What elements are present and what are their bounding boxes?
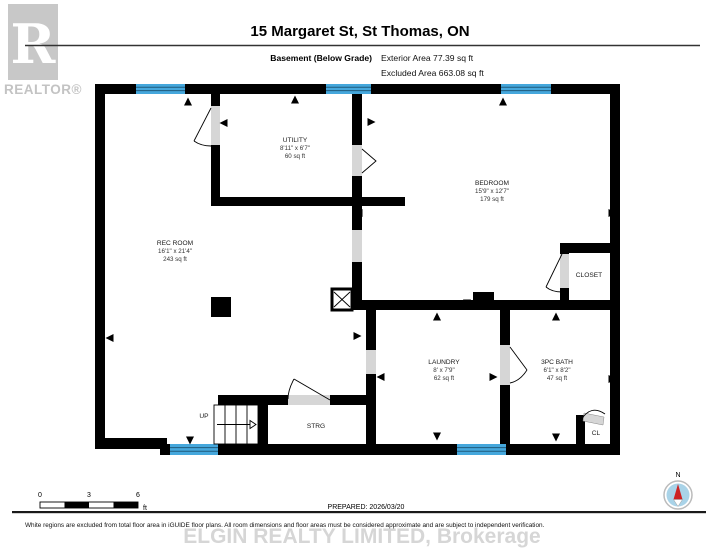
bedroom-dims: 15'9" x 12'7" xyxy=(475,188,509,195)
wall-laundry-left-2 xyxy=(366,374,376,445)
wall-bedroom-bottom xyxy=(352,300,620,310)
direction-arrow xyxy=(552,434,560,442)
chimney-box xyxy=(332,289,352,310)
door-opening-utility xyxy=(211,106,220,145)
compass: N xyxy=(664,472,692,509)
direction-arrow xyxy=(433,313,441,321)
wall-bedroom-bottom-bump xyxy=(473,292,494,300)
rec-room-area: 243 sq ft xyxy=(163,256,187,263)
floor-plan-page: R REALTOR® 15 Margaret St, St Thomas, ON… xyxy=(0,0,720,556)
door-leaf-utility xyxy=(194,108,211,141)
prepared-date: PREPARED: 2026/03/20 xyxy=(328,504,405,511)
bath-area: 47 sq ft xyxy=(547,375,568,382)
wall-divider-2 xyxy=(352,176,362,230)
direction-arrow xyxy=(368,118,376,126)
direction-arrow xyxy=(186,437,194,445)
header: 15 Margaret St, St Thomas, ON Basement (… xyxy=(25,23,700,78)
laundry-dims: 8' x 7'9" xyxy=(433,367,454,374)
doors xyxy=(194,106,605,425)
wall-bath-left-2 xyxy=(500,385,510,445)
bath-dims: 6'1" x 8'2" xyxy=(543,367,570,374)
direction-arrow xyxy=(552,313,560,321)
wall-bottom-left-step xyxy=(95,438,167,449)
direction-arrow xyxy=(220,119,228,127)
door-leaf-bath xyxy=(510,347,527,370)
door-opening-laundry xyxy=(366,350,376,374)
realtor-logo-letter: R xyxy=(11,12,57,76)
cl-name: CL xyxy=(592,430,601,437)
rec-room-dims: 16'1" x 21'4" xyxy=(158,248,192,255)
wall-left xyxy=(95,84,105,449)
door-opening-bedroom-top xyxy=(352,145,362,176)
scale-tick-3: 3 xyxy=(87,492,91,499)
door-arc-utility xyxy=(194,141,211,146)
scale-bar: 0 3 6 ft xyxy=(38,492,147,512)
wall-bottom xyxy=(160,444,620,455)
door-opening-bath xyxy=(500,345,510,385)
door-leaf-cl xyxy=(583,413,604,425)
stairs-up-label: UP xyxy=(199,413,209,420)
door-leaf-closet xyxy=(546,254,562,287)
direction-arrow xyxy=(433,433,441,441)
utility-dims: 8'11" x 6'7" xyxy=(280,145,310,152)
direction-arrow xyxy=(106,334,114,342)
door-arc-bath xyxy=(510,370,527,383)
door-leaf-bedroom-top xyxy=(362,149,376,173)
floor-plan-svg: R REALTOR® 15 Margaret St, St Thomas, ON… xyxy=(0,0,720,556)
opening-recroom-bedroom xyxy=(352,230,362,262)
compass-north-label: N xyxy=(675,472,680,479)
direction-arrow xyxy=(354,332,362,340)
window xyxy=(136,84,185,94)
wall-laundry-left-1 xyxy=(366,310,376,350)
utility-name: UTILITY xyxy=(283,137,308,144)
footer: ELGIN REALTY LIMITED, Brokerage White re… xyxy=(12,511,706,548)
realtor-logo-text: REALTOR® xyxy=(4,82,82,97)
door-arc-closet xyxy=(546,287,562,292)
direction-arrow xyxy=(377,373,385,381)
wall-closet-left-1 xyxy=(560,243,569,254)
direction-arrow xyxy=(490,373,498,381)
window xyxy=(501,84,551,94)
window xyxy=(326,84,371,94)
scale-bar-segment xyxy=(114,502,139,508)
window xyxy=(457,444,506,455)
support-post xyxy=(211,297,231,317)
wall-strg-top-1 xyxy=(218,395,288,405)
direction-arrow xyxy=(499,98,507,106)
laundry-area: 62 sq ft xyxy=(434,375,455,382)
wall-strg-top-2 xyxy=(330,395,370,405)
realtor-logo: R REALTOR® xyxy=(4,4,82,97)
wall-utility-left-stub xyxy=(211,94,220,106)
bath-name: 3PC BATH xyxy=(541,359,573,366)
rec-room-name: REC ROOM xyxy=(157,240,193,247)
excluded-area: Excluded Area 663.08 sq ft xyxy=(381,68,484,78)
bedroom-name: BEDROOM xyxy=(475,180,509,187)
wall-utility-left xyxy=(211,145,220,206)
scale-tick-6: 6 xyxy=(136,492,140,499)
stairs xyxy=(214,405,258,444)
scale-bar-segment xyxy=(65,502,90,508)
wall-stairs-strg-divider xyxy=(258,395,268,445)
laundry-name: LAUNDRY xyxy=(428,359,460,366)
room-labels: REC ROOM 16'1" x 21'4" 243 sq ft UTILITY… xyxy=(157,137,602,437)
walls xyxy=(95,84,620,455)
utility-area: 60 sq ft xyxy=(285,153,306,160)
bedroom-area: 179 sq ft xyxy=(480,196,504,203)
direction-arrow xyxy=(184,98,192,106)
scale-tick-0: 0 xyxy=(38,492,42,499)
wall-divider-1 xyxy=(352,94,362,145)
scale-unit: ft xyxy=(143,505,147,512)
wall-bath-left-1 xyxy=(500,310,510,345)
window xyxy=(170,444,218,455)
door-opening-closet xyxy=(560,254,569,288)
wall-closet-left-2 xyxy=(560,288,569,300)
footer-divider xyxy=(12,511,706,513)
direction-arrow xyxy=(291,96,299,104)
page-title: 15 Margaret St, St Thomas, ON xyxy=(250,23,469,40)
wall-right xyxy=(610,84,620,455)
floor-label: Basement (Below Grade) xyxy=(270,53,372,63)
footer-disclaimer: White regions are excluded from total fl… xyxy=(25,522,545,529)
exterior-area: Exterior Area 77.39 sq ft xyxy=(381,53,474,63)
wall-utility-bottom xyxy=(211,197,405,206)
closet-name: CLOSET xyxy=(576,272,602,279)
strg-name: STRG xyxy=(307,423,325,430)
